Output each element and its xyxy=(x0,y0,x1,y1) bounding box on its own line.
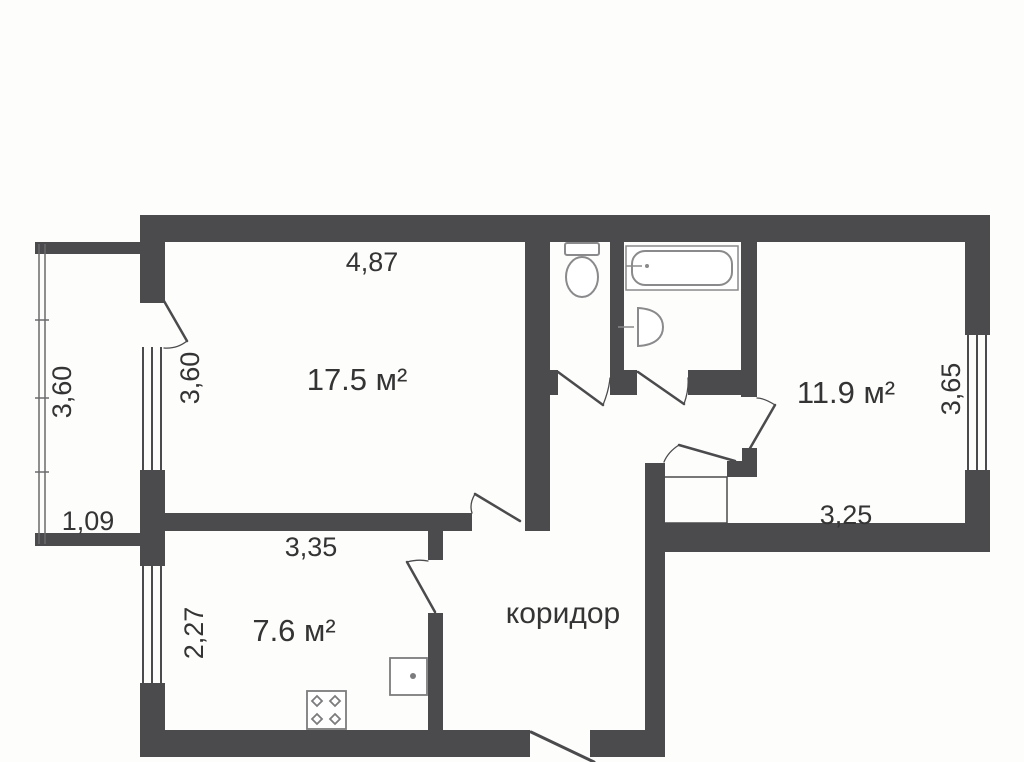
dim-bedroom-width: 3,25 xyxy=(820,500,873,530)
floor-plan: 17.5 м² 7.6 м² 11.9 м² коридор 4,87 1,09… xyxy=(0,0,1024,762)
wall-living-kitchen xyxy=(165,513,472,531)
dim-bedroom-height: 3,65 xyxy=(936,363,966,416)
toilet-tank xyxy=(565,243,599,255)
toilet-icon xyxy=(565,243,599,297)
stove-4-burner-icon xyxy=(307,691,346,729)
dim-kitchen-height: 2,27 xyxy=(179,607,209,660)
kitchen-area-label: 7.6 м² xyxy=(252,613,335,648)
corridor-label: коридор xyxy=(506,597,620,630)
wall-left-middle xyxy=(140,470,165,566)
dim-balcony-width: 1,09 xyxy=(62,506,115,536)
wall-wc-bath-front-mid xyxy=(610,370,637,395)
wall-top xyxy=(140,215,990,242)
wall-bedroom-door-stub xyxy=(742,448,757,477)
wall-balcony-top xyxy=(35,242,140,254)
sink-body xyxy=(390,658,427,695)
dim-kitchen-width: 3,35 xyxy=(285,532,338,562)
toilet-bowl xyxy=(566,257,598,297)
stove-body xyxy=(307,691,346,729)
floor-plan-drawing: 17.5 м² 7.6 м² 11.9 м² коридор 4,87 1,09… xyxy=(0,0,1024,762)
dim-living-width: 4,87 xyxy=(346,247,399,277)
sink-drain xyxy=(410,673,416,679)
wall-right-upper xyxy=(965,242,990,335)
dim-living-height: 3,60 xyxy=(175,352,205,405)
kitchen-sink-icon xyxy=(390,658,427,695)
wall-living-corridor xyxy=(525,242,550,531)
bathtub-outer xyxy=(626,246,738,290)
wall-bottom-left xyxy=(140,730,530,757)
wall-bath-bedroom xyxy=(741,242,757,397)
wall-left-upper xyxy=(140,242,165,303)
wall-wc-front-left xyxy=(550,370,558,395)
bathtub-icon xyxy=(626,246,738,290)
dim-balcony-height: 3,60 xyxy=(47,366,77,419)
wall-corridor-right xyxy=(645,463,665,757)
bathtub-drain xyxy=(645,264,649,268)
wall-wc-bath-divider xyxy=(610,242,624,370)
living-room-area-label: 17.5 м² xyxy=(307,362,408,397)
wall-kitchen-corridor-upper xyxy=(428,531,443,560)
wall-bedroom-bottom xyxy=(645,523,990,552)
wall-kitchen-corridor-lower xyxy=(428,613,443,730)
wall-closet-right-stub xyxy=(727,461,742,477)
bedroom-area-label: 11.9 м² xyxy=(797,375,895,410)
